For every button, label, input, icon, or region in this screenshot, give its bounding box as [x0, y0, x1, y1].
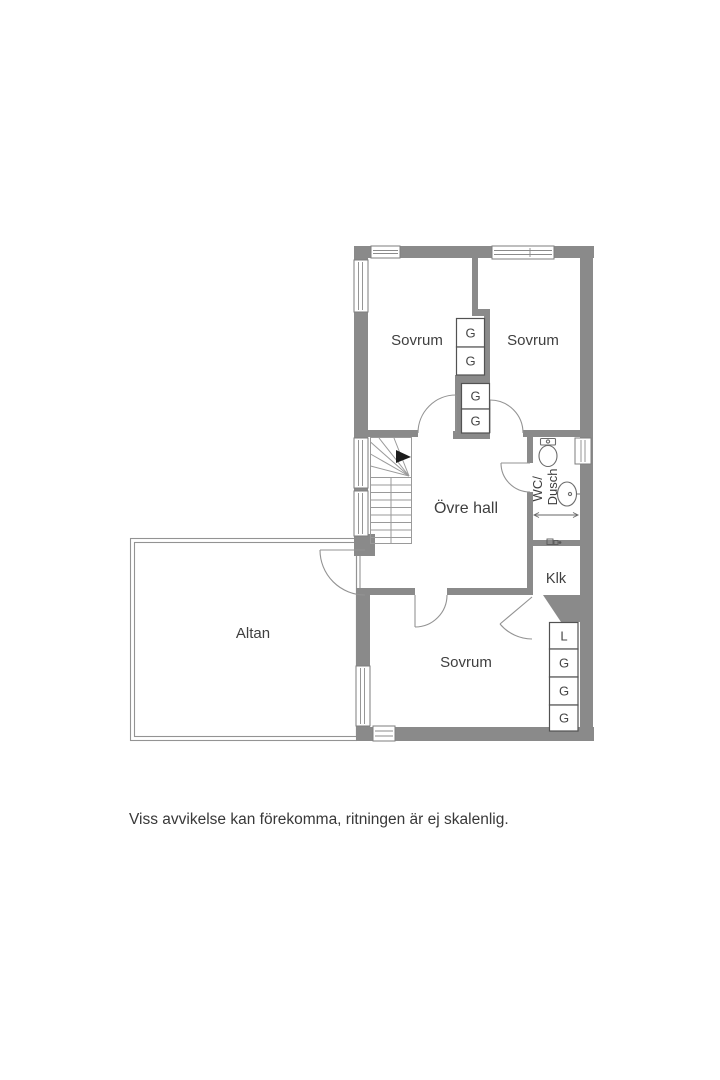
wardrobe-label: L	[560, 629, 567, 644]
sink-icon	[558, 482, 581, 506]
toilet-icon	[539, 439, 557, 467]
wc-label-line2: Dusch	[545, 469, 560, 506]
window-icon	[492, 246, 554, 259]
doors	[320, 395, 532, 639]
wardrobe-label: G	[470, 389, 480, 404]
staircase	[371, 438, 412, 544]
wardrobe-label: G	[559, 684, 569, 699]
wardrobe-label: G	[559, 656, 569, 671]
wardrobe-label: G	[559, 711, 569, 726]
wall-hatch	[373, 726, 395, 741]
door-arc-bedroom-right	[490, 400, 523, 433]
disclaimer-text: Viss avvikelse kan förekomma, ritningen …	[129, 811, 509, 829]
room-label-upper-hall: Övre hall	[434, 499, 498, 517]
wardrobe-label: G	[465, 326, 475, 341]
window-icon	[575, 438, 591, 464]
room-label-klk: Klk	[546, 571, 567, 587]
klk-diagonal-wall	[543, 595, 580, 622]
room-label-bedroom-top-left: Sovrum	[391, 332, 443, 349]
window-icon	[354, 260, 368, 312]
room-label-wc-dusch: WC/ Dusch	[530, 469, 560, 506]
door-arc-bedroom-bottom	[415, 595, 447, 627]
door-arc-wc	[501, 463, 530, 492]
right-wardrobes: L G G G	[550, 623, 579, 732]
wardrobe-label: G	[470, 414, 480, 429]
floor-plan-svg: G G G G L G G G Sovrum Sovrum Övre hall	[0, 0, 720, 1080]
door-arc-klk	[500, 597, 532, 639]
room-label-bedroom-bottom: Sovrum	[440, 654, 492, 671]
window-icon	[371, 246, 400, 258]
door-arc-bedroom-left	[418, 395, 456, 433]
room-label-bedroom-top-right: Sovrum	[507, 332, 559, 349]
wardrobe-label: G	[465, 354, 475, 369]
window-icon	[354, 491, 368, 536]
wc-measure-arrow	[534, 513, 578, 518]
window-icon	[356, 666, 370, 726]
window-icon	[354, 438, 368, 488]
room-label-altan: Altan	[236, 625, 270, 642]
wc-label-line1: WC/	[530, 476, 545, 502]
